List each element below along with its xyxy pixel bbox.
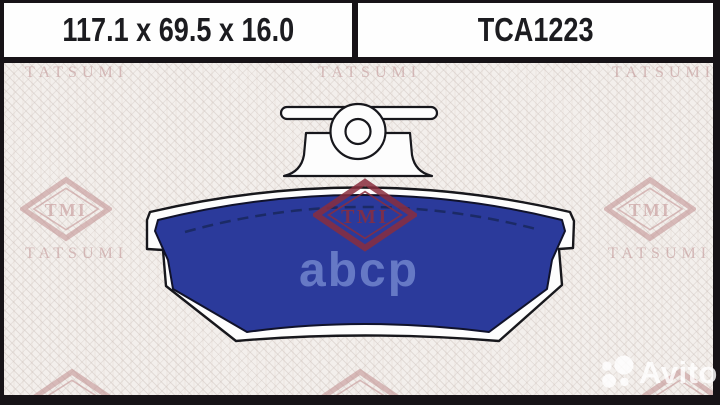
dimensions-cell: 117.1 x 69.5 x 16.0 [4, 3, 352, 57]
part-number-value: TCA1223 [478, 11, 594, 49]
tmi-logo-text: TMI [45, 200, 87, 220]
tmi-diamond-watermark [26, 368, 118, 395]
tatsumi-watermark: TATSUMI [612, 64, 713, 82]
tmi-diamond-watermark: TMI [20, 176, 112, 242]
abcp-watermark: abcp [299, 243, 419, 298]
part-number-cell: TCA1223 [358, 3, 713, 57]
tatsumi-watermark: TATSUMI [318, 64, 421, 82]
avito-watermark-text: Avito [639, 355, 718, 391]
tatsumi-watermark: TATSUMI [25, 245, 128, 263]
tmi-logo-text: TMI [629, 200, 671, 220]
tmi-logo-text: TMI [339, 392, 381, 395]
avito-watermark: Avito [599, 355, 718, 391]
product-image: 117.1 x 69.5 x 16.0 TCA1223 TATSUMI TATS… [0, 0, 720, 405]
spec-header: 117.1 x 69.5 x 16.0 TCA1223 [0, 0, 720, 63]
tmi-logo-text: TMI [341, 206, 389, 228]
tatsumi-watermark: TATSUMI [608, 245, 711, 263]
avito-logo-icon [599, 355, 635, 391]
tatsumi-watermark: TATSUMI [25, 64, 128, 82]
tmi-diamond-watermark: TMI [604, 176, 696, 242]
tmi-diamond-watermark-on-pad: TMI [313, 178, 417, 252]
dimensions-value: 117.1 x 69.5 x 16.0 [62, 11, 294, 49]
tmi-diamond-watermark: TMI [314, 368, 406, 395]
